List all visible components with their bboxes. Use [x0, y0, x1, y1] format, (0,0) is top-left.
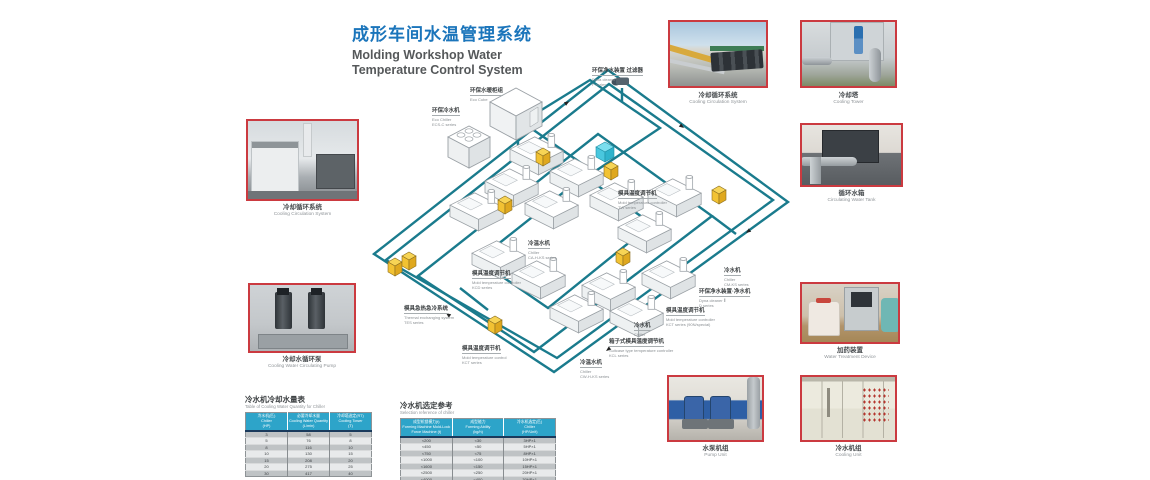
- ground-shape: [248, 191, 357, 199]
- dosing-tank-shape: [808, 301, 841, 335]
- table1: 冷水机(匹)Chiller(HP)必要冷却水量Cooling Water Qua…: [245, 412, 372, 477]
- caption-cooling-circulation-left: 冷却循环系统 Cooling Circulation System: [246, 204, 359, 218]
- table-cell: <400: [452, 476, 504, 480]
- pump-shape: [684, 396, 705, 422]
- caption-cooling-unit: 冷水机组 Cooling Unit: [800, 445, 897, 459]
- table-row: 1520820: [246, 457, 372, 464]
- table-cell: 5: [330, 431, 372, 438]
- pipe-shape: [800, 157, 857, 165]
- table1-subtitle: Table of Cooling Water Quantity for Chil…: [245, 404, 372, 410]
- table-header-cell: 冷水机(匹)Chiller(HP): [246, 413, 288, 431]
- cabinet-slot-shape: [827, 388, 830, 417]
- cooling-water-quantity-table: 冷水机冷却水量表 Table of Cooling Water Quantity…: [245, 395, 372, 477]
- chimney-shape: [303, 123, 313, 158]
- photo-cooling-unit: [800, 375, 897, 442]
- pump-shape: [308, 292, 325, 329]
- led-grid-shape: [862, 387, 890, 422]
- label-eco-chiller: 环保冷水机 Eco Chiller ECS-C series: [432, 99, 460, 127]
- photo-cooling-tower: [800, 20, 897, 88]
- table-cell: 30HP×1: [504, 476, 556, 480]
- table-row: 1013015: [246, 451, 372, 458]
- table-row: 2027525: [246, 464, 372, 471]
- table-header-cell: 成型能力Forming Ability(kg/h): [452, 419, 504, 437]
- pipe-shape: [747, 377, 760, 429]
- caption-water-tank: 循环水箱 Circulating Water Tank: [800, 190, 903, 204]
- label-dyna-cleaner: 环保净水装置 过滤器 Dyna cleaner F series: [592, 59, 643, 87]
- table-header-cell: 冷却塔选定(RT)Cooling Tower(T): [330, 413, 372, 431]
- table2-title: 冷水机选定参考: [400, 401, 556, 410]
- table-header-cell: 必要冷却水量Cooling Water Quantity(L/min): [288, 413, 330, 431]
- photo-water-treatment: [800, 282, 900, 344]
- table-row: 811610: [246, 444, 372, 451]
- chiller-selection-table: 冷水机选定参考 Selection reference of chiller 成…: [400, 401, 556, 480]
- photo-water-tank: [800, 123, 903, 187]
- table2-subtitle: Selection reference of chiller: [400, 410, 556, 416]
- pump-shape: [710, 396, 731, 422]
- table-cell: 3: [246, 431, 288, 438]
- table-row: <450<505HP×1: [401, 444, 556, 451]
- table-header-cell: 成型机锁模力(t)Forming Machine Mold-LockForce …: [401, 419, 453, 437]
- photo-cooling-circulation-left: [246, 119, 359, 201]
- cooling-tower-shape: [251, 141, 299, 191]
- table1-body: 3585576881161010130151520820202752530417…: [246, 431, 372, 477]
- table-row: <2500<25020HP×1: [401, 470, 556, 477]
- table-cell: 417: [288, 470, 330, 477]
- pipe-shape: [802, 57, 832, 65]
- base-shape: [258, 334, 347, 349]
- table1-header-row: 冷水机(匹)Chiller(HP)必要冷却水量Cooling Water Qua…: [246, 413, 372, 431]
- table1-title: 冷水机冷却水量表: [245, 395, 372, 404]
- photo-circulating-pump: [248, 283, 356, 353]
- pipe-shape: [881, 298, 900, 332]
- control-cabinet-shape: [844, 287, 879, 331]
- caption-cooling-tower: 冷却塔 Cooling Tower: [800, 92, 897, 106]
- table-cell: <4000: [401, 476, 453, 480]
- table-cell: 40: [330, 470, 372, 477]
- table2-body: <200<303HP×1<450<505HP×1<750<758HP×1<100…: [401, 437, 556, 480]
- label-suitcase-controller: 箱子式模具温度调节机 Suitcase type temperature con…: [609, 330, 673, 358]
- table2: 成型机锁模力(t)Forming Machine Mold-LockForce …: [400, 418, 556, 480]
- label-mold-controller-kct: 模具温度调节机 Mold temperature control KCT ser…: [462, 337, 506, 365]
- photo-pump-unit: [667, 375, 764, 442]
- label-chiller-cwhks: 冷温水机 Chiller CW-H-KS series: [580, 351, 609, 379]
- label-eco-cube: 环保水暖柜组 Eco Cube: [470, 79, 503, 102]
- table-row: <4000<40030HP×1: [401, 476, 556, 480]
- label-mold-controller-tw: 模具温度调节机 Mold temperature controller TW s…: [618, 182, 667, 210]
- pipe-shape: [869, 48, 881, 83]
- eco-chiller-unit: [448, 126, 490, 168]
- label-mold-controller-kcd: 模具温度调节机 Mold temperature controller KCD …: [472, 262, 521, 290]
- table-cell: <30: [452, 437, 504, 444]
- table-row: 3585: [246, 431, 372, 438]
- table-row: 3041740: [246, 470, 372, 477]
- pipe-shape: [810, 157, 821, 183]
- blue-pump-shape: [854, 26, 863, 54]
- pump-shape: [275, 292, 292, 329]
- caption-water-treatment: 加药装置 Water Treatment Device: [800, 347, 900, 361]
- caption-circulating-pump: 冷却水循环泵 Cooling Water Circulating Pump: [248, 356, 356, 370]
- brochure-page: 成形车间水温管理系统 Molding Workshop Water Temper…: [0, 0, 1150, 480]
- page-title-chinese: 成形车间水温管理系统: [352, 20, 592, 45]
- table-cell: <200: [401, 437, 453, 444]
- caption-pump-unit: 水泵机组 Pump Unit: [667, 445, 764, 459]
- table-row: <200<303HP×1: [401, 437, 556, 444]
- table-cell: 30: [246, 470, 288, 477]
- label-mold-controller-kct-special: 模具温度调节机 Mold temperature controller KCT …: [666, 299, 715, 327]
- table2-header-row: 成型机锁模力(t)Forming Machine Mold-LockForce …: [401, 419, 556, 437]
- table-header-cell: 冷水机选定(匹)Chiller(HP/Unit): [504, 419, 556, 437]
- table-row: <750<758HP×1: [401, 450, 556, 457]
- equipment-shape: [316, 154, 355, 189]
- piping-diagram: [360, 48, 800, 378]
- table-row: <1600<15015HP×1: [401, 463, 556, 470]
- table-row: <1000<10010HP×1: [401, 457, 556, 464]
- table-cell: 58: [288, 431, 330, 438]
- table-cell: 3HP×1: [504, 437, 556, 444]
- label-chiller-cahks: 冷温水机 Chiller CA-H-KS series: [528, 232, 556, 260]
- label-thermal-exchanging: 模具急热急冷系统 Thermal exchanging system TES s…: [404, 297, 454, 325]
